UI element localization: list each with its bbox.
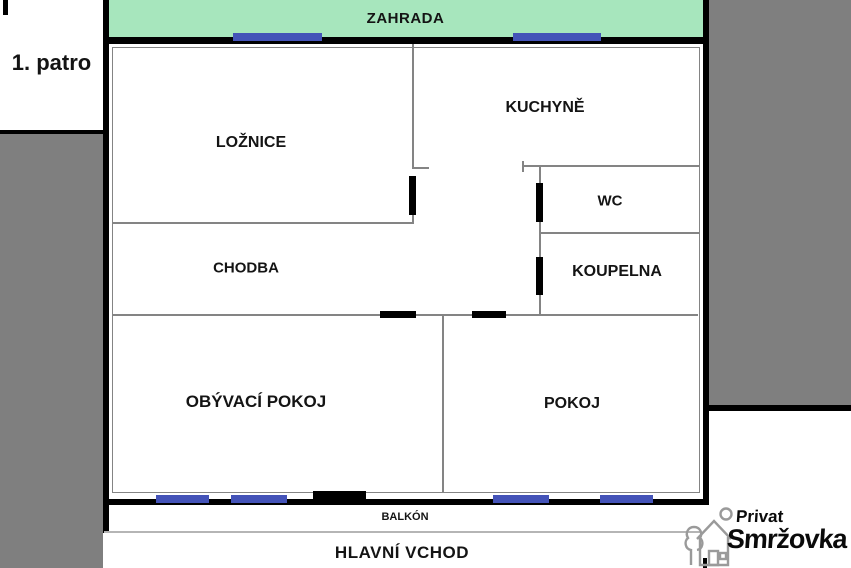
- door-balkon: [313, 491, 366, 505]
- wall-kuchyne-bottom-jamb: [522, 161, 524, 172]
- window-top-2: [513, 33, 601, 41]
- wall-loznice-bottom: [112, 222, 414, 224]
- room-label-loznice: LOŽNICE: [216, 134, 286, 152]
- garden-label: ZAHRADA: [367, 10, 445, 27]
- door-pokoj: [472, 311, 506, 318]
- wall-kuchyne-bottom: [523, 165, 700, 167]
- room-label-koupelna: KOUPELNA: [572, 263, 662, 281]
- room-label-obyvaci-pokoj: OBÝVACÍ POKOJ: [186, 392, 326, 412]
- top-left-mark: [3, 0, 8, 15]
- logo-text-line1: Privat: [735, 508, 783, 525]
- door-kuchyne: [409, 176, 416, 215]
- wall-wc-koupelna-divider: [540, 232, 700, 234]
- room-label-chodba: CHODBA: [213, 260, 279, 277]
- door-obyvaci-pokoj: [380, 311, 416, 318]
- window-bottom-1: [156, 495, 209, 503]
- window-bottom-4: [600, 495, 653, 503]
- logo: Privat Smržovka: [684, 503, 851, 568]
- door-koupelna: [536, 257, 543, 295]
- wall-pokoj-divider: [442, 314, 444, 493]
- outside-area-left: [0, 134, 103, 568]
- outside-area-right: [709, 0, 851, 406]
- wall-loznice-kuchyne: [412, 44, 414, 168]
- room-label-kuchyne: KUCHYNĚ: [505, 99, 584, 117]
- room-label-pokoj: POKOJ: [544, 395, 600, 413]
- window-bottom-3: [493, 495, 549, 503]
- door-wc: [536, 183, 543, 222]
- right-area-divider: [703, 405, 851, 411]
- garden-area: ZAHRADA: [108, 0, 703, 37]
- balcony-label: BALKÓN: [381, 511, 428, 523]
- entrance-label: HLAVNÍ VCHOD: [335, 543, 469, 563]
- left-area-divider: [0, 130, 109, 134]
- wall-loznice-kuchyne-jamb: [412, 167, 429, 169]
- wall-top-outer: [103, 37, 709, 44]
- window-top-1: [233, 33, 322, 41]
- wall-left-outer: [103, 0, 109, 533]
- balcony-edge-line: [104, 531, 700, 533]
- floor-plan: 1. patro ZAHRADA LOŽNICE KUCHYNĚ WC KOUP…: [0, 0, 851, 568]
- floor-title: 1. patro: [0, 50, 103, 76]
- window-bottom-2: [231, 495, 287, 503]
- logo-text-line2: Smržovka: [726, 526, 847, 553]
- wall-right-outer: [703, 0, 709, 505]
- room-label-wc: WC: [598, 193, 623, 210]
